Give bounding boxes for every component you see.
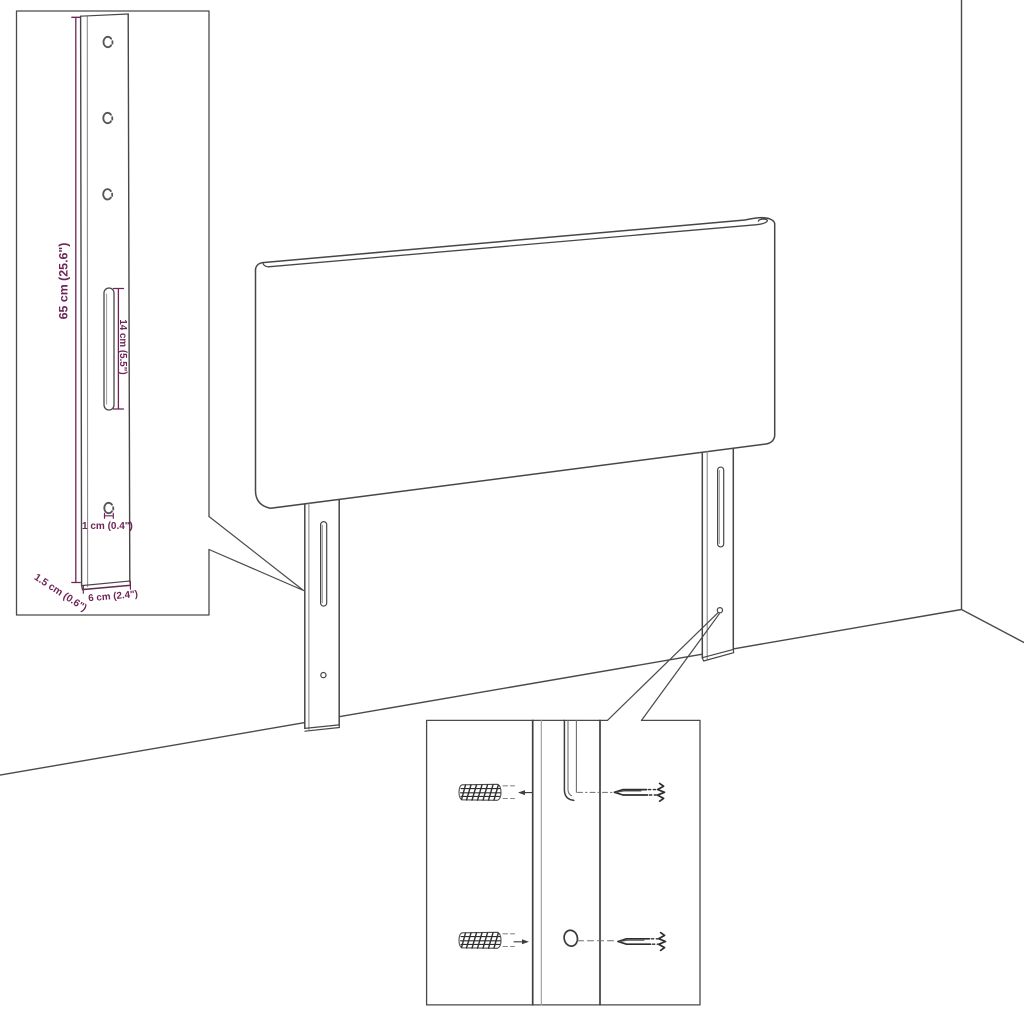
svg-text:1.5 cm (0.6"): 1.5 cm (0.6") xyxy=(32,572,89,614)
svg-text:65 cm (25.6"): 65 cm (25.6") xyxy=(57,243,71,320)
svg-text:1 cm (0.4"): 1 cm (0.4") xyxy=(82,521,133,532)
svg-text:6 cm (2.4"): 6 cm (2.4") xyxy=(88,589,139,604)
svg-text:14 cm (5.5"): 14 cm (5.5") xyxy=(117,319,128,374)
